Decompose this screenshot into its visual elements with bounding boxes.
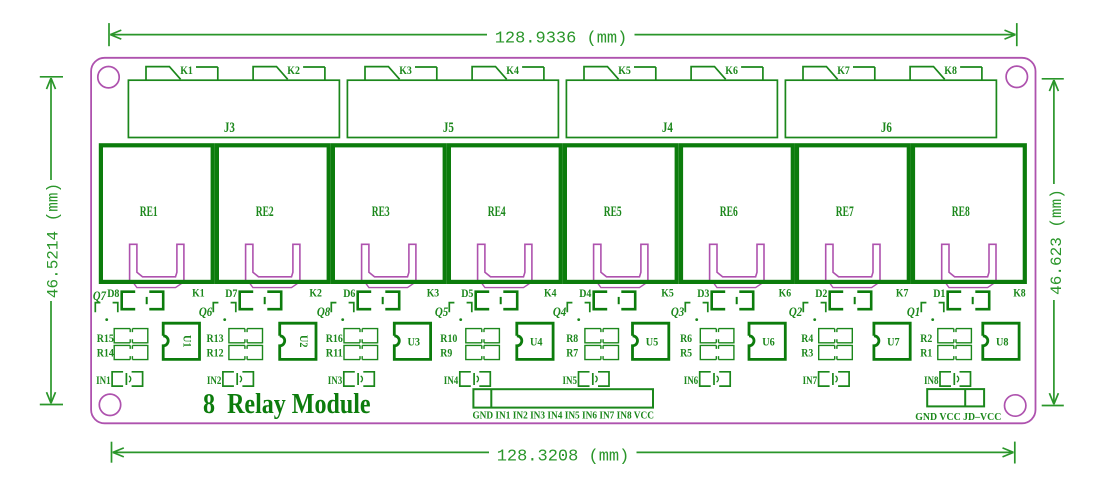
svg-text:J5: J5 bbox=[443, 120, 454, 136]
svg-text:46.5214 (mm): 46.5214 (mm) bbox=[45, 183, 63, 298]
svg-text:R12: R12 bbox=[207, 346, 224, 360]
svg-text:K5: K5 bbox=[661, 285, 674, 299]
svg-text:U5: U5 bbox=[646, 335, 659, 349]
svg-text:R4: R4 bbox=[801, 331, 813, 345]
svg-text:128.9336 (mm): 128.9336 (mm) bbox=[495, 30, 628, 49]
svg-text:RE6: RE6 bbox=[720, 204, 738, 220]
svg-text:RE7: RE7 bbox=[836, 204, 854, 220]
svg-text:IN5: IN5 bbox=[563, 373, 578, 387]
svg-text:R1: R1 bbox=[920, 346, 932, 360]
svg-text:R8: R8 bbox=[566, 331, 578, 345]
svg-text:U4: U4 bbox=[530, 335, 543, 349]
svg-text:R14: R14 bbox=[97, 346, 114, 360]
svg-text:D6: D6 bbox=[343, 286, 355, 300]
svg-text:U2: U2 bbox=[297, 335, 311, 348]
svg-text:IN3: IN3 bbox=[328, 373, 343, 387]
svg-text:K4: K4 bbox=[506, 63, 519, 77]
svg-text:IN7: IN7 bbox=[803, 373, 818, 387]
svg-text:J6: J6 bbox=[881, 120, 892, 136]
svg-text:J3: J3 bbox=[224, 120, 235, 136]
svg-text:Q4: Q4 bbox=[553, 304, 567, 319]
svg-text:D7: D7 bbox=[225, 286, 237, 300]
svg-text:Q6: Q6 bbox=[199, 304, 213, 319]
svg-text:K5: K5 bbox=[618, 63, 631, 77]
svg-text:K7: K7 bbox=[896, 285, 909, 299]
svg-text:U6: U6 bbox=[762, 335, 775, 349]
svg-text:R3: R3 bbox=[801, 346, 813, 360]
svg-text:Q2: Q2 bbox=[789, 304, 803, 319]
svg-text:K7: K7 bbox=[837, 63, 850, 77]
svg-text:U7: U7 bbox=[887, 335, 900, 349]
svg-text:D3: D3 bbox=[697, 286, 709, 300]
svg-text:46.623 (mm): 46.623 (mm) bbox=[1048, 189, 1066, 295]
svg-text:RE2: RE2 bbox=[256, 204, 274, 220]
svg-text:D2: D2 bbox=[815, 286, 827, 300]
svg-text:K8: K8 bbox=[944, 63, 957, 77]
svg-text:R15: R15 bbox=[97, 331, 114, 345]
svg-text:K1: K1 bbox=[180, 63, 193, 77]
svg-text:D5: D5 bbox=[461, 286, 473, 300]
svg-text:RE3: RE3 bbox=[372, 204, 390, 220]
svg-text:IN4: IN4 bbox=[444, 373, 459, 387]
svg-text:RE4: RE4 bbox=[488, 204, 506, 220]
svg-text:K3: K3 bbox=[427, 285, 440, 299]
svg-text:IN2: IN2 bbox=[207, 373, 222, 387]
svg-text:128.3208 (mm): 128.3208 (mm) bbox=[497, 447, 630, 466]
svg-text:K6: K6 bbox=[725, 63, 738, 77]
svg-text:RE5: RE5 bbox=[604, 204, 622, 220]
svg-text:K6: K6 bbox=[779, 285, 792, 299]
svg-text:R7: R7 bbox=[566, 346, 578, 360]
svg-text:K4: K4 bbox=[544, 285, 557, 299]
svg-text:R16: R16 bbox=[326, 331, 343, 345]
svg-text:U8: U8 bbox=[996, 335, 1009, 349]
svg-text:D8: D8 bbox=[107, 286, 119, 300]
svg-text:IN6: IN6 bbox=[684, 373, 699, 387]
svg-text:Q3: Q3 bbox=[671, 304, 685, 319]
svg-text:U1: U1 bbox=[181, 335, 195, 348]
svg-text:K3: K3 bbox=[399, 63, 412, 77]
svg-text:K2: K2 bbox=[309, 285, 322, 299]
svg-text:Q8: Q8 bbox=[317, 304, 331, 319]
svg-text:R11: R11 bbox=[326, 346, 343, 360]
svg-text:GND IN1 IN2 IN3 IN4 IN5 IN6 IN: GND IN1 IN2 IN3 IN4 IN5 IN6 IN7 IN8 VCC bbox=[472, 410, 654, 422]
svg-text:R9: R9 bbox=[440, 346, 452, 360]
svg-text:Q1: Q1 bbox=[907, 304, 920, 319]
svg-text:D4: D4 bbox=[579, 286, 591, 300]
svg-text:RE8: RE8 bbox=[952, 204, 970, 220]
svg-text:8 Relay Module: 8 Relay Module bbox=[203, 389, 371, 420]
svg-text:U3: U3 bbox=[408, 335, 421, 349]
svg-text:Q5: Q5 bbox=[435, 304, 449, 319]
svg-text:K1: K1 bbox=[192, 285, 205, 299]
svg-text:J4: J4 bbox=[662, 120, 673, 136]
svg-text:R13: R13 bbox=[207, 331, 224, 345]
svg-text:RE1: RE1 bbox=[140, 204, 158, 220]
svg-text:K2: K2 bbox=[287, 63, 300, 77]
svg-text:R6: R6 bbox=[680, 331, 692, 345]
svg-text:D1: D1 bbox=[933, 286, 945, 300]
svg-text:K8: K8 bbox=[1013, 285, 1025, 299]
svg-text:Q7: Q7 bbox=[93, 288, 106, 303]
svg-text:IN1: IN1 bbox=[96, 373, 111, 387]
svg-text:R2: R2 bbox=[920, 331, 932, 345]
svg-text:R5: R5 bbox=[680, 346, 692, 360]
svg-text:IN8: IN8 bbox=[924, 373, 939, 387]
svg-text:R10: R10 bbox=[440, 331, 457, 345]
svg-text:GND VCC JD–VCC: GND VCC JD–VCC bbox=[915, 411, 1001, 423]
